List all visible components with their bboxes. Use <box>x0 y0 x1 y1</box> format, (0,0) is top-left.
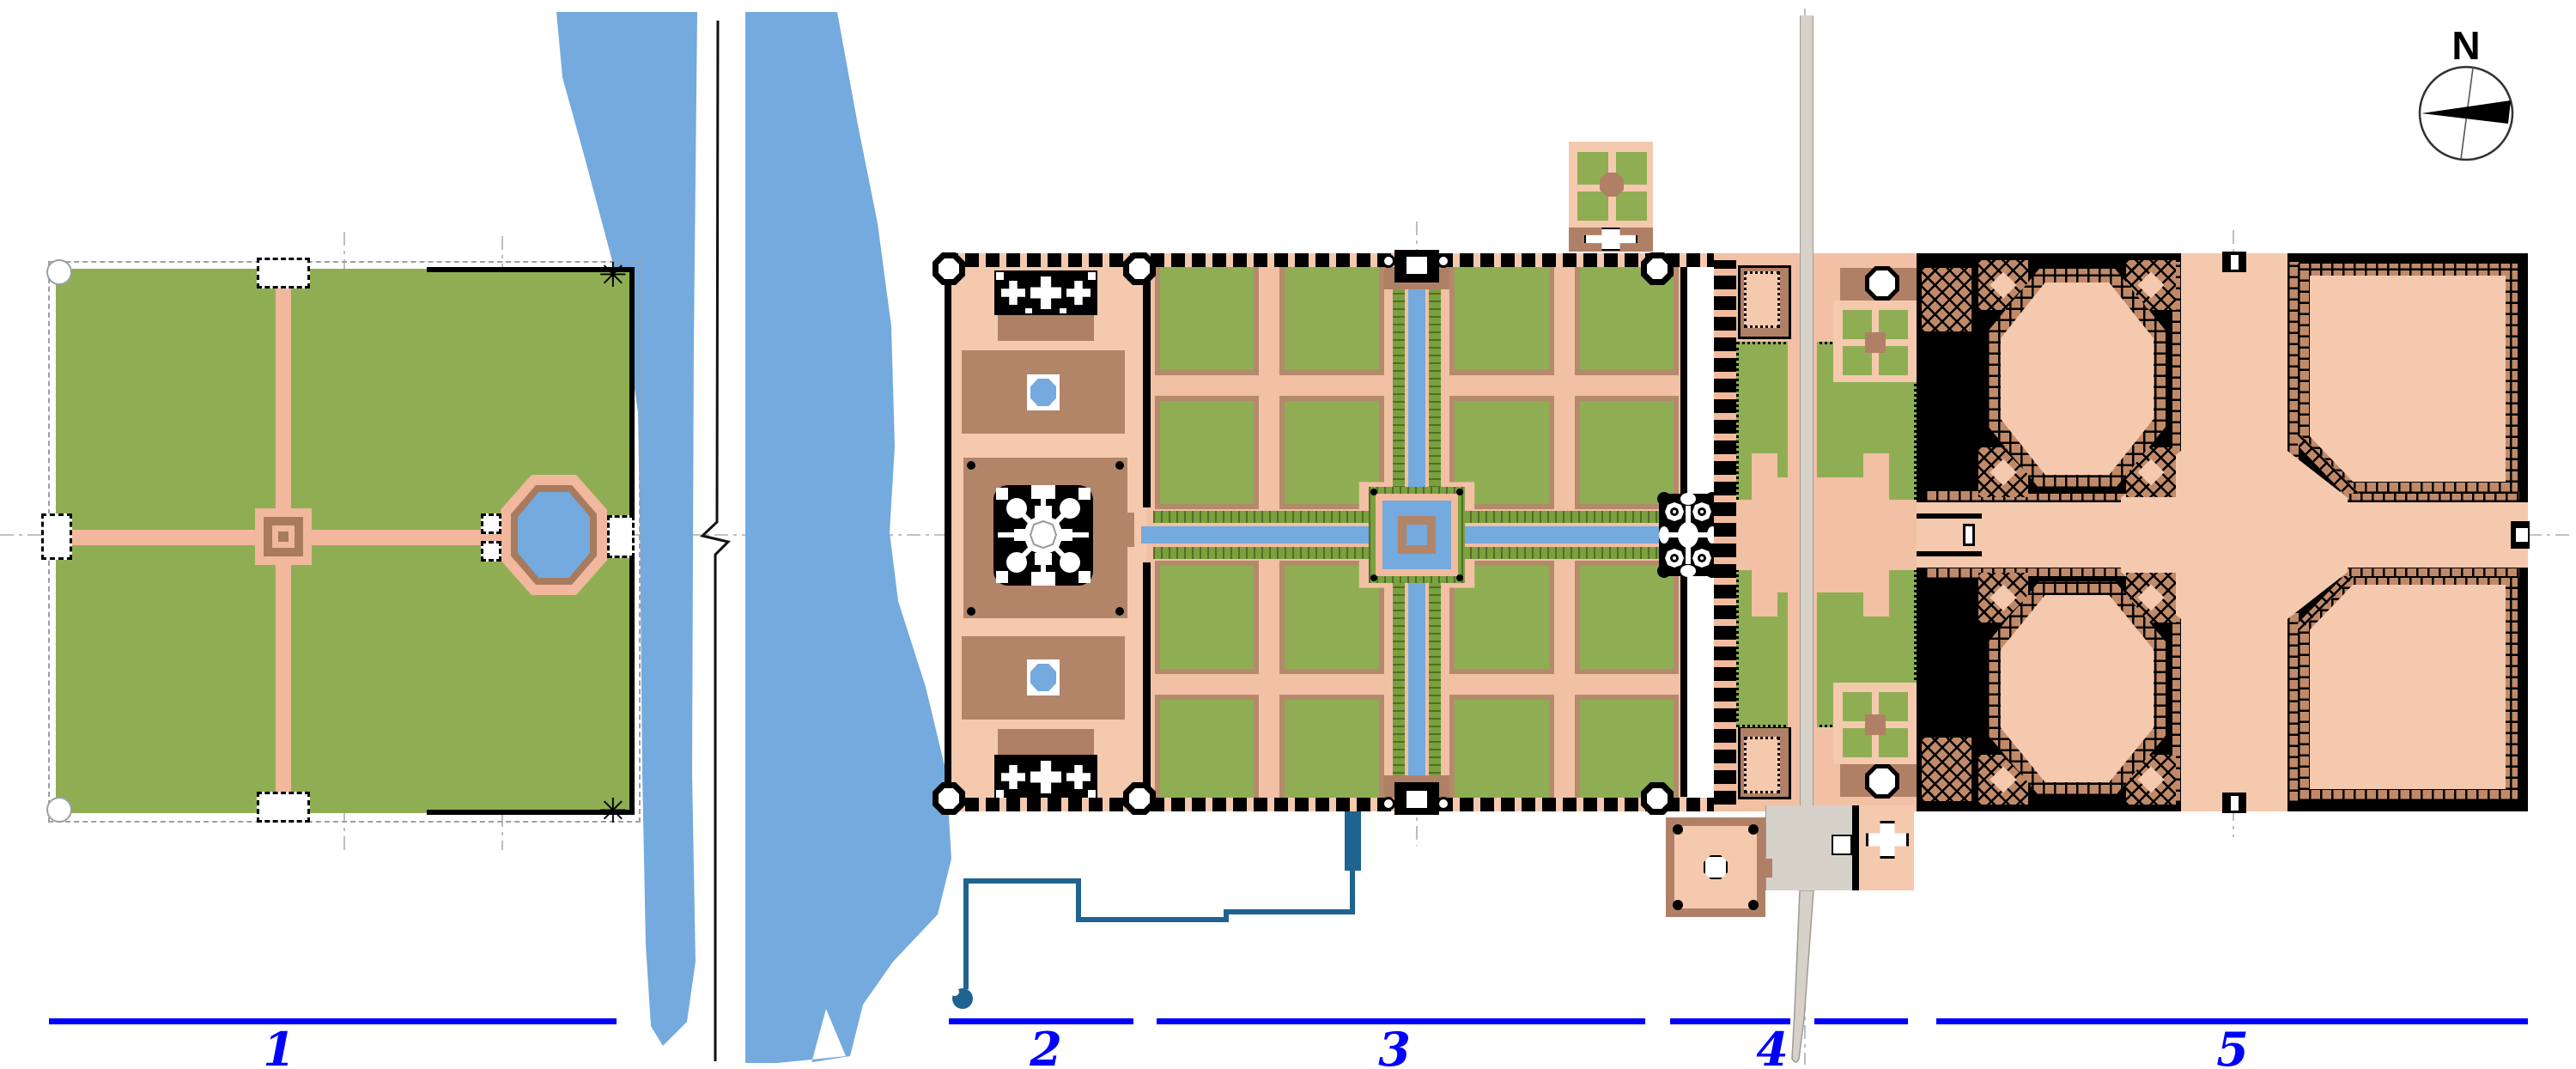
garden-south-gate <box>257 792 310 823</box>
mosque-cell <box>1060 308 1066 313</box>
mosque-cell <box>1025 308 1032 313</box>
guesthouse-cell <box>1088 790 1096 798</box>
pool-west-pavilion <box>481 513 501 534</box>
court-floor <box>1744 737 1780 793</box>
serai-south-gate-slot <box>2231 796 2239 811</box>
gate-turret <box>1437 254 1450 268</box>
south-pool <box>1030 664 1056 691</box>
parterre <box>1155 695 1259 803</box>
charbagh-garden <box>1146 253 1687 811</box>
south-mosque-plan <box>1866 821 1909 859</box>
section-label-4: 4 <box>1747 1022 1798 1069</box>
wall-tower <box>1123 782 1156 815</box>
terrace-garden-wall <box>1143 260 1151 507</box>
section-label-2: 2 <box>1020 1022 1072 1069</box>
wall-tower <box>933 782 965 815</box>
river-right-band <box>745 12 951 1063</box>
corner-tower-star-icon: ✳ <box>598 256 628 295</box>
serai-court-se <box>2298 576 2518 801</box>
parterre <box>1279 262 1384 375</box>
court-yard <box>2310 276 2506 482</box>
khawasspura-court <box>1738 726 1791 799</box>
south-mosque <box>1859 805 1914 890</box>
section-label-1: 1 <box>253 1022 305 1069</box>
lawn-step <box>1752 592 1777 616</box>
garden-west-gate <box>41 513 72 560</box>
parterre <box>1155 262 1259 375</box>
garden-central-platform-core <box>278 531 289 542</box>
corner-hatch <box>1922 268 1971 331</box>
guesthouse-room <box>1001 765 1025 789</box>
pool-platform-water <box>1406 525 1427 545</box>
mosque-cell <box>996 272 1004 280</box>
charbagh-south-gate-hall <box>1406 791 1427 808</box>
inner-tomb-garden-plot <box>1833 683 1917 764</box>
lawn-step <box>1863 592 1889 616</box>
pool-corner <box>1456 574 1463 581</box>
guesthouse-room <box>1066 765 1091 789</box>
wall-tower <box>933 252 965 285</box>
court-yard <box>2001 282 2154 475</box>
wall-tower <box>1641 782 1674 815</box>
garden-north-gate <box>257 258 310 289</box>
plaza-east-wall <box>1852 805 1859 890</box>
lawn-step <box>1752 453 1777 477</box>
tomb-octagon-inner <box>1869 270 1895 296</box>
corner-tower-circle-icon <box>46 259 72 285</box>
mosque-apron <box>998 315 1094 341</box>
plinth-stair <box>967 607 975 616</box>
aqueduct-line <box>951 809 1361 1009</box>
parterre <box>1155 396 1259 509</box>
section-line-1 <box>49 1018 617 1024</box>
gate-turret <box>1382 254 1395 268</box>
terrace-garden-wall <box>1143 562 1151 799</box>
forecourt-west-wall <box>1714 260 1736 805</box>
mosque-room <box>1066 281 1091 305</box>
tomb-corner <box>1673 900 1683 910</box>
great-gate <box>1657 489 1719 581</box>
forecourt-centre-square <box>1752 477 1889 592</box>
tomb-corner <box>1748 824 1759 835</box>
pool-corner <box>1456 489 1463 495</box>
serai-east-gate-slot <box>2516 528 2528 542</box>
road-upper <box>1800 15 1814 807</box>
serai-west-gate-slot <box>1963 524 1975 546</box>
mosque-building <box>994 270 1097 315</box>
pool-corner <box>1370 489 1377 495</box>
moonlight-garden: ✳ ✳ <box>45 258 646 824</box>
charbagh-north-gate-hall <box>1406 257 1427 274</box>
mini-centre-octagon <box>1600 173 1624 197</box>
inner-tomb-garden-plot <box>1833 301 1917 382</box>
terrace-west-wall <box>945 253 951 811</box>
parterre <box>1279 695 1384 803</box>
gate-turret <box>1437 797 1450 811</box>
guesthouse-apron <box>998 729 1094 755</box>
riverfront-terrace <box>945 253 1151 811</box>
compass-north-label: N <box>2440 22 2492 64</box>
serai-court-ne <box>2298 264 2518 494</box>
plinth-stair <box>1115 461 1124 470</box>
section-label-3: 3 <box>1369 1022 1420 1069</box>
serai-court-sw <box>1982 576 2172 801</box>
tomb-octagon-inner <box>1869 768 1895 794</box>
mosque-room <box>1001 281 1025 305</box>
parterre <box>1449 561 1554 674</box>
corner-tower-star-icon: ✳ <box>598 792 628 831</box>
mini-centre <box>1865 332 1886 353</box>
serai-north-gate-slot <box>2231 255 2239 270</box>
tomb-hall <box>1704 855 1728 879</box>
guesthouse-building <box>994 755 1097 799</box>
caravanserai <box>1917 253 2528 811</box>
plinth-stair <box>1115 607 1124 616</box>
pool-east-pavilion <box>607 515 635 558</box>
wall-tower <box>1123 252 1156 285</box>
court-yard <box>2310 585 2506 789</box>
mini-lawn <box>1577 191 1608 221</box>
river-break-line <box>702 21 728 1061</box>
plinth-stair <box>967 461 975 470</box>
compass-rose-icon <box>2420 67 2512 160</box>
wall-tower <box>1641 252 1674 285</box>
plinth-east-step <box>1127 513 1134 547</box>
guesthouse-cell <box>996 790 1004 798</box>
great-gate-plan <box>1657 489 1719 581</box>
parterre <box>1449 262 1554 375</box>
tomb-step <box>1765 859 1772 878</box>
octagonal-pool-water <box>518 492 590 578</box>
mausoleum-plan <box>993 485 1093 586</box>
court-floor <box>1744 271 1780 328</box>
pool-corner <box>1370 574 1377 581</box>
parterre <box>1449 396 1554 509</box>
mosque-cell <box>1088 272 1096 280</box>
gate-turret <box>1382 797 1395 811</box>
tomb-corner <box>1673 824 1683 835</box>
section-label-5: 5 <box>2207 1022 2258 1069</box>
parterre <box>1449 695 1554 803</box>
plaza-kiosk <box>1832 835 1852 855</box>
south-tomb <box>1666 817 1765 917</box>
court-yard <box>2001 595 2154 782</box>
mini-centre <box>1865 714 1886 735</box>
site-plan-canvas: N ✳ ✳ <box>0 0 2576 1069</box>
guesthouse-hall <box>1030 761 1061 793</box>
corner-hatch <box>1922 738 1971 801</box>
parterre <box>1155 561 1259 674</box>
corner-tower-circle-icon <box>46 797 72 823</box>
khawasspura-court <box>1738 265 1791 339</box>
mosque-hall <box>1030 276 1061 309</box>
north-pool <box>1030 379 1056 406</box>
lawn-step <box>1863 453 1889 477</box>
section-line-4b <box>1814 1018 1908 1024</box>
serai-court-nw <box>1982 264 2172 494</box>
north-tomb-garden <box>1569 142 1653 252</box>
pool-west-pavilion <box>481 541 501 562</box>
tomb-corner <box>1748 900 1759 910</box>
mini-lawn <box>1616 191 1647 221</box>
